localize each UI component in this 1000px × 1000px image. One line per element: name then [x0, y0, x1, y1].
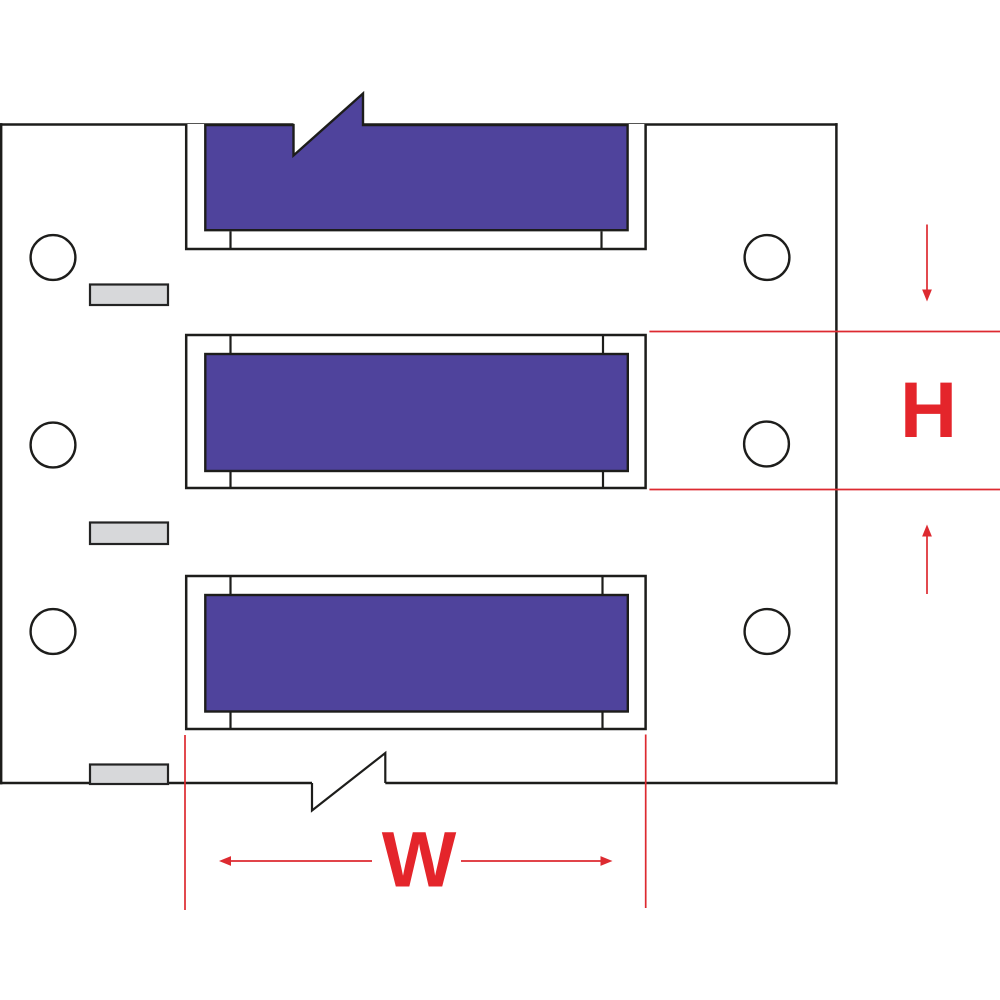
svg-text:H: H: [900, 365, 957, 454]
svg-text:W: W: [382, 815, 457, 904]
